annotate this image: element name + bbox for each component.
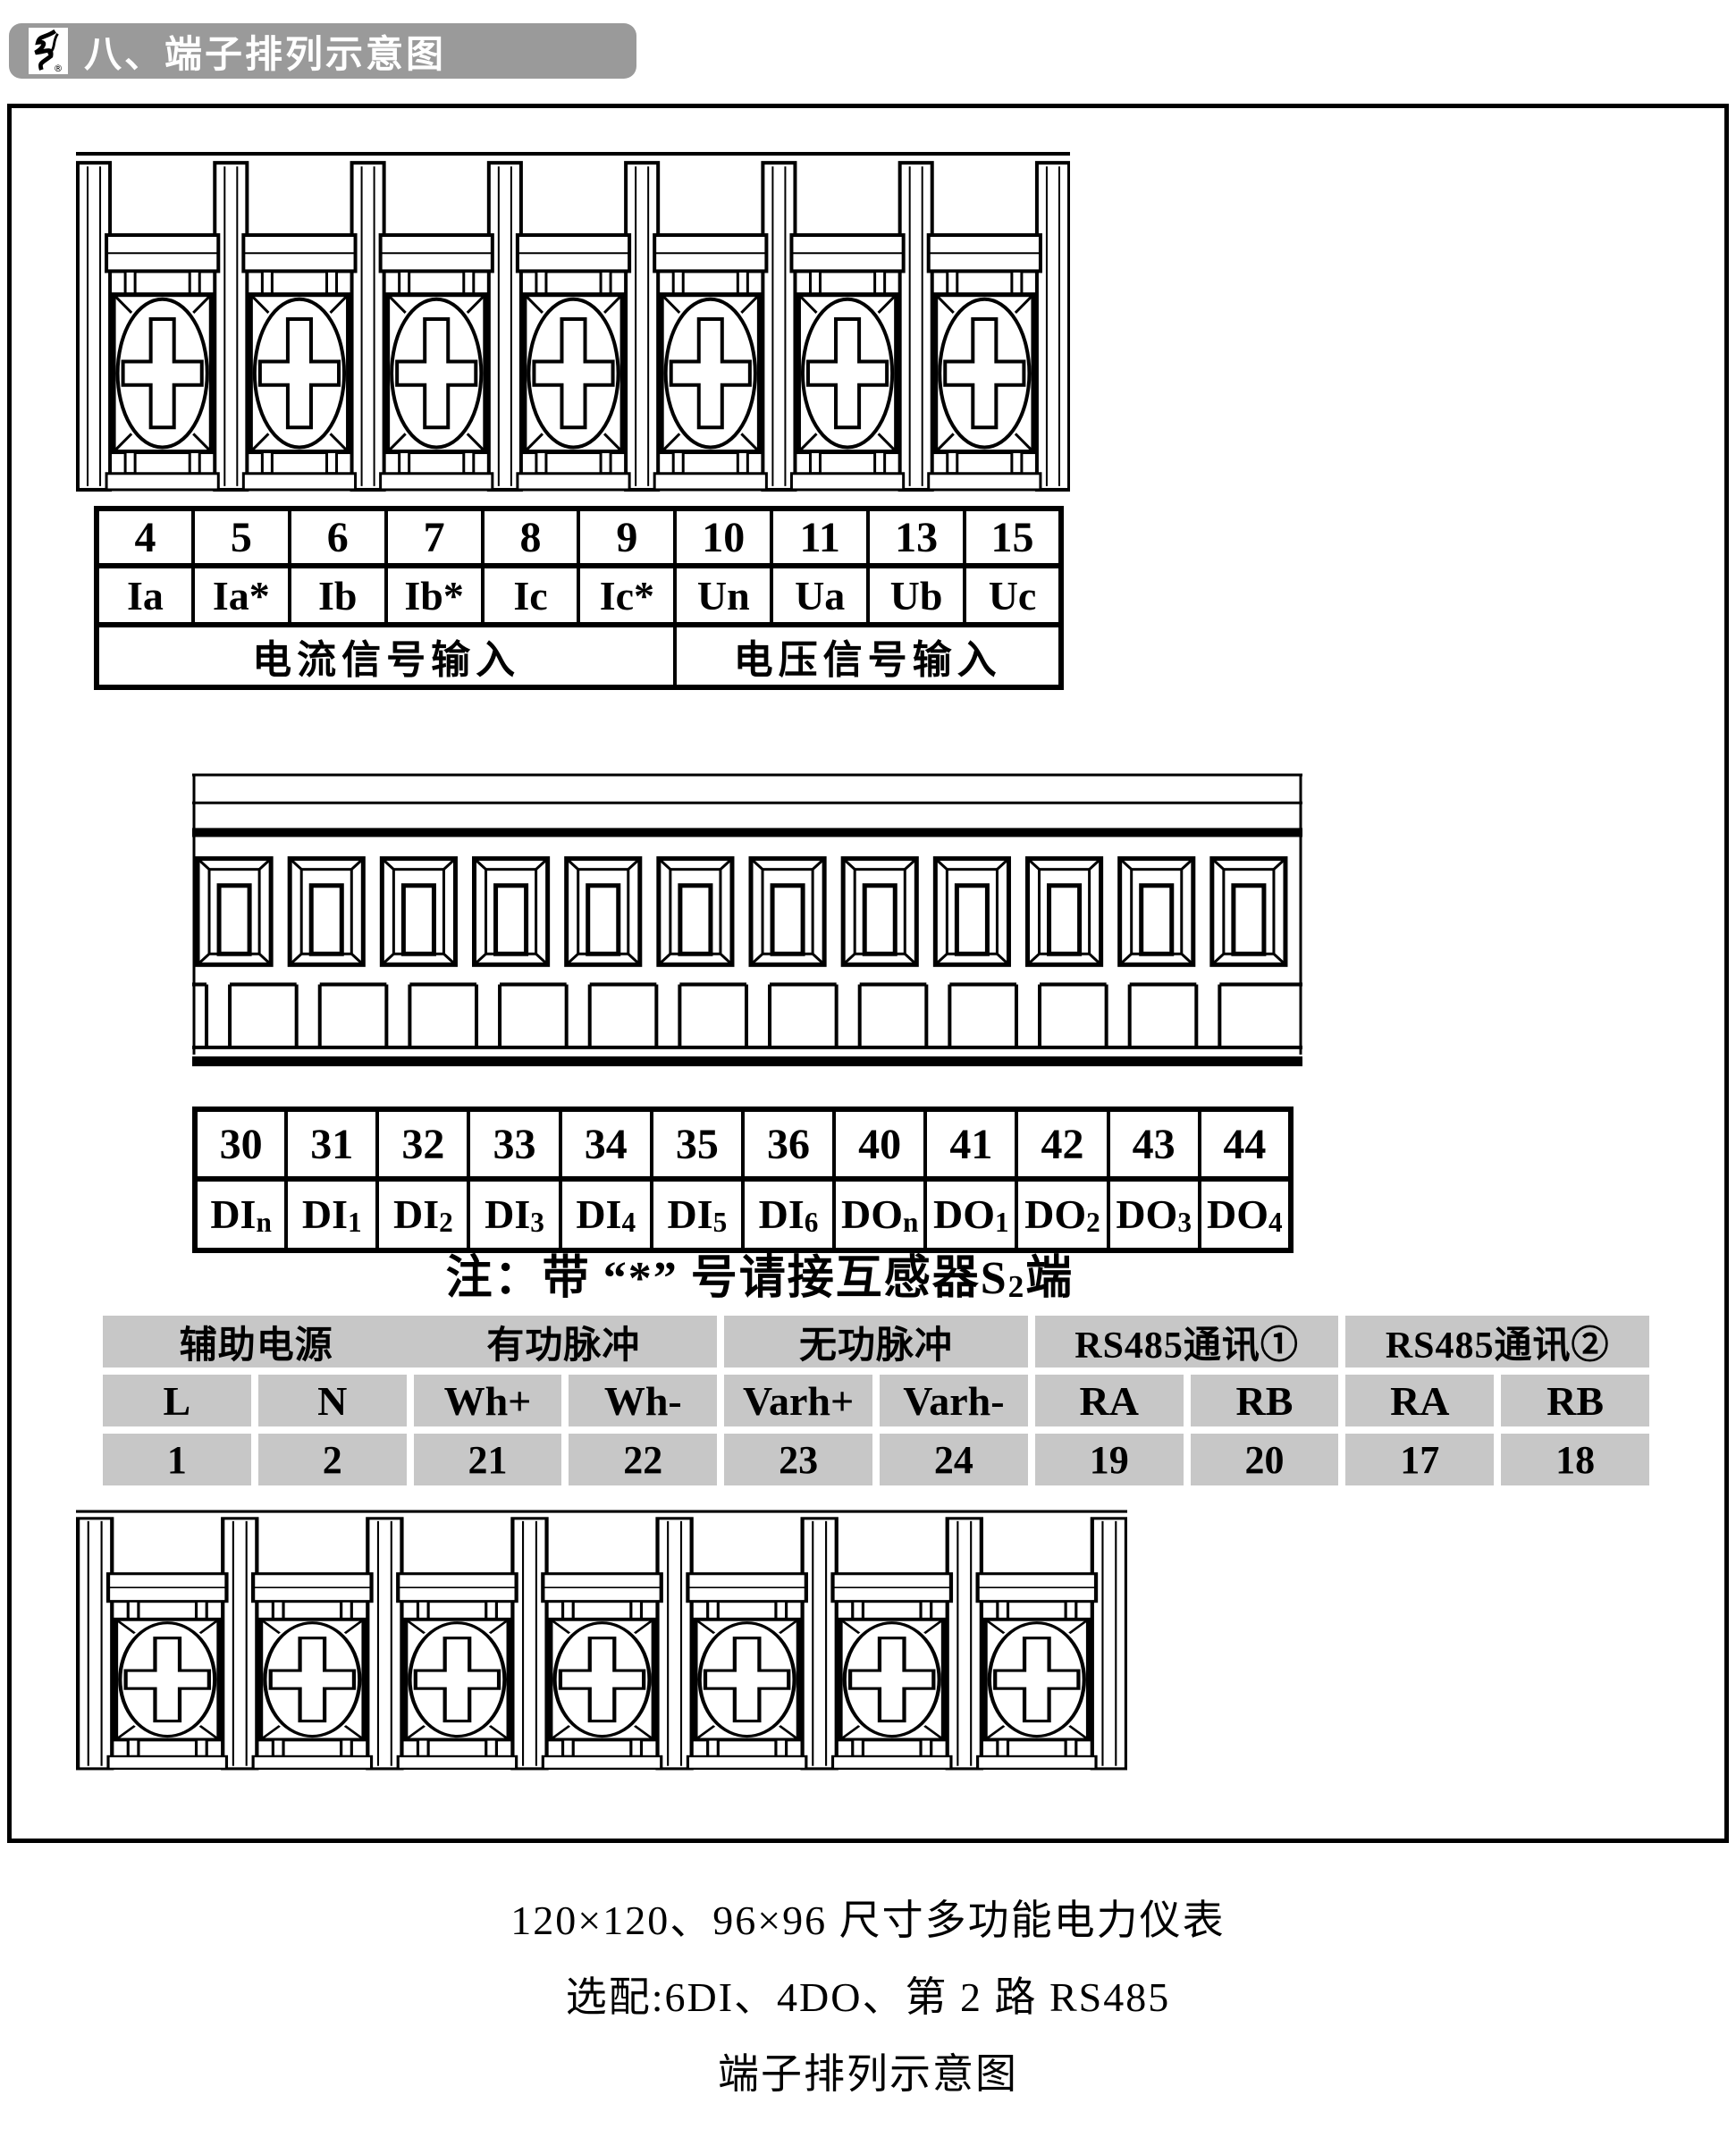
terminal-number: 13 [868,509,965,566]
caption-line-1: 120×120、96×96 尺寸多功能电力仪表 [0,1898,1736,1943]
terminal-label: DI3 [468,1179,560,1250]
group-voltage-input: 电压信号输入 [675,625,1061,687]
terminal-label: Ib [290,566,386,625]
terminal-number: 41 [925,1109,1016,1179]
signal-label: RB [1191,1375,1339,1426]
group-rs485-1: RS485通讯① [1035,1316,1339,1367]
plug-connector-strip-art [192,770,1302,1067]
terminal-label: DO3 [1108,1179,1200,1250]
terminal-number: 11 [771,509,868,566]
terminal-number-row: 4 5 6 7 8 9 10 11 13 15 [97,509,1061,566]
svg-text:®: ® [54,63,63,72]
di-do-terminal-table: 30 31 32 33 34 35 36 40 41 42 43 44 DIn … [192,1107,1294,1253]
terminal-label: DI4 [560,1179,652,1250]
signal-label: RB [1501,1375,1649,1426]
signal-label: RA [1345,1375,1494,1426]
signal-label: Wh- [569,1375,717,1426]
terminal-number: 32 [377,1109,468,1179]
current-voltage-terminal-table: 4 5 6 7 8 9 10 11 13 15 Ia Ia* Ib Ib* Ic… [94,506,1064,690]
terminal-label: DO1 [925,1179,1016,1250]
terminal-label: DI6 [743,1179,834,1250]
screw-terminal-strip-bottom-art [76,1509,1127,1771]
terminal-label: Ia* [193,566,290,625]
group-aux-power-and-active-pulse: 辅助电源有功脉冲 [103,1316,717,1367]
page-title: 八、端子排列示意图 [84,24,446,79]
terminal-number: 15 [965,509,1061,566]
signal-label: N [258,1375,407,1426]
terminal-number: 10 [675,509,771,566]
figure-caption: 120×120、96×96 尺寸多功能电力仪表 选配:6DI、4DO、第 2 路… [0,1898,1736,2129]
caption-line-2: 选配:6DI、4DO、第 2 路 RS485 [0,1975,1736,2020]
terminal-label: Ub [868,566,965,625]
terminal-number: 20 [1191,1434,1339,1485]
terminal-label: DIn [195,1179,286,1250]
terminal-number: 4 [97,509,193,566]
terminal-number: 24 [880,1434,1028,1485]
terminal-number: 6 [290,509,386,566]
terminal-group-row: 电流信号输入 电压信号输入 [97,625,1061,687]
signal-label: Varh- [880,1375,1028,1426]
terminal-label: DOn [834,1179,925,1250]
terminal-number: 17 [1345,1434,1494,1485]
terminal-number: 36 [743,1109,834,1179]
terminal-label: DI2 [377,1179,468,1250]
terminal-number-row: 30 31 32 33 34 35 36 40 41 42 43 44 [195,1109,1291,1179]
terminal-number: 33 [468,1109,560,1179]
signal-label: Varh+ [724,1375,872,1426]
brand-logo: ® [29,28,68,74]
group-reactive-pulse: 无功脉冲 [724,1316,1028,1367]
terminal-label: Ic* [578,566,675,625]
transformer-note: 注：带“*”号请接互感器S2端 [134,1248,1386,1310]
terminal-number: 2 [258,1434,407,1485]
terminal-number: 40 [834,1109,925,1179]
group-current-input: 电流信号输入 [97,625,675,687]
terminal-label: Ib* [386,566,483,625]
terminal-number: 23 [724,1434,872,1485]
terminal-label-row: DIn DI1 DI2 DI3 DI4 DI5 DI6 DOn DO1 DO2 … [195,1179,1291,1250]
terminal-label: DO4 [1200,1179,1291,1250]
terminal-number: 34 [560,1109,652,1179]
group-rs485-2: RS485通讯② [1345,1316,1649,1367]
brand-logo-icon: ® [30,29,66,72]
terminal-number: 31 [286,1109,377,1179]
caption-line-3: 端子排列示意图 [0,2052,1736,2097]
signal-label: RA [1035,1375,1184,1426]
terminal-number: 35 [652,1109,743,1179]
terminal-label: Un [675,566,771,625]
terminal-number: 22 [569,1434,717,1485]
terminal-label: Ua [771,566,868,625]
terminal-label: Ic [483,566,579,625]
terminal-number: 43 [1108,1109,1200,1179]
signal-label: L [103,1375,251,1426]
signal-label: Wh+ [414,1375,562,1426]
aux-power-pulse-rs485-table: 辅助电源有功脉冲 无功脉冲 RS485通讯① RS485通讯② L N Wh+ … [103,1316,1649,1485]
terminal-number: 44 [1200,1109,1291,1179]
terminal-label-row: Ia Ia* Ib Ib* Ic Ic* Un Ua Ub Uc [97,566,1061,625]
terminal-number: 18 [1501,1434,1649,1485]
terminal-number: 9 [578,509,675,566]
terminal-number: 7 [386,509,483,566]
terminal-number: 8 [483,509,579,566]
terminal-label: Ia [97,566,193,625]
screw-terminal-strip-top-art [76,150,1070,493]
terminal-number: 1 [103,1434,251,1485]
section-header-bar: ® 八、端子排列示意图 [9,23,636,79]
terminal-number: 19 [1035,1434,1184,1485]
terminal-label: DO2 [1016,1179,1108,1250]
terminal-label: Uc [965,566,1061,625]
terminal-number: 30 [195,1109,286,1179]
terminal-number: 42 [1016,1109,1108,1179]
terminal-number: 5 [193,509,290,566]
terminal-number: 21 [414,1434,562,1485]
terminal-label: DI5 [652,1179,743,1250]
terminal-label: DI1 [286,1179,377,1250]
